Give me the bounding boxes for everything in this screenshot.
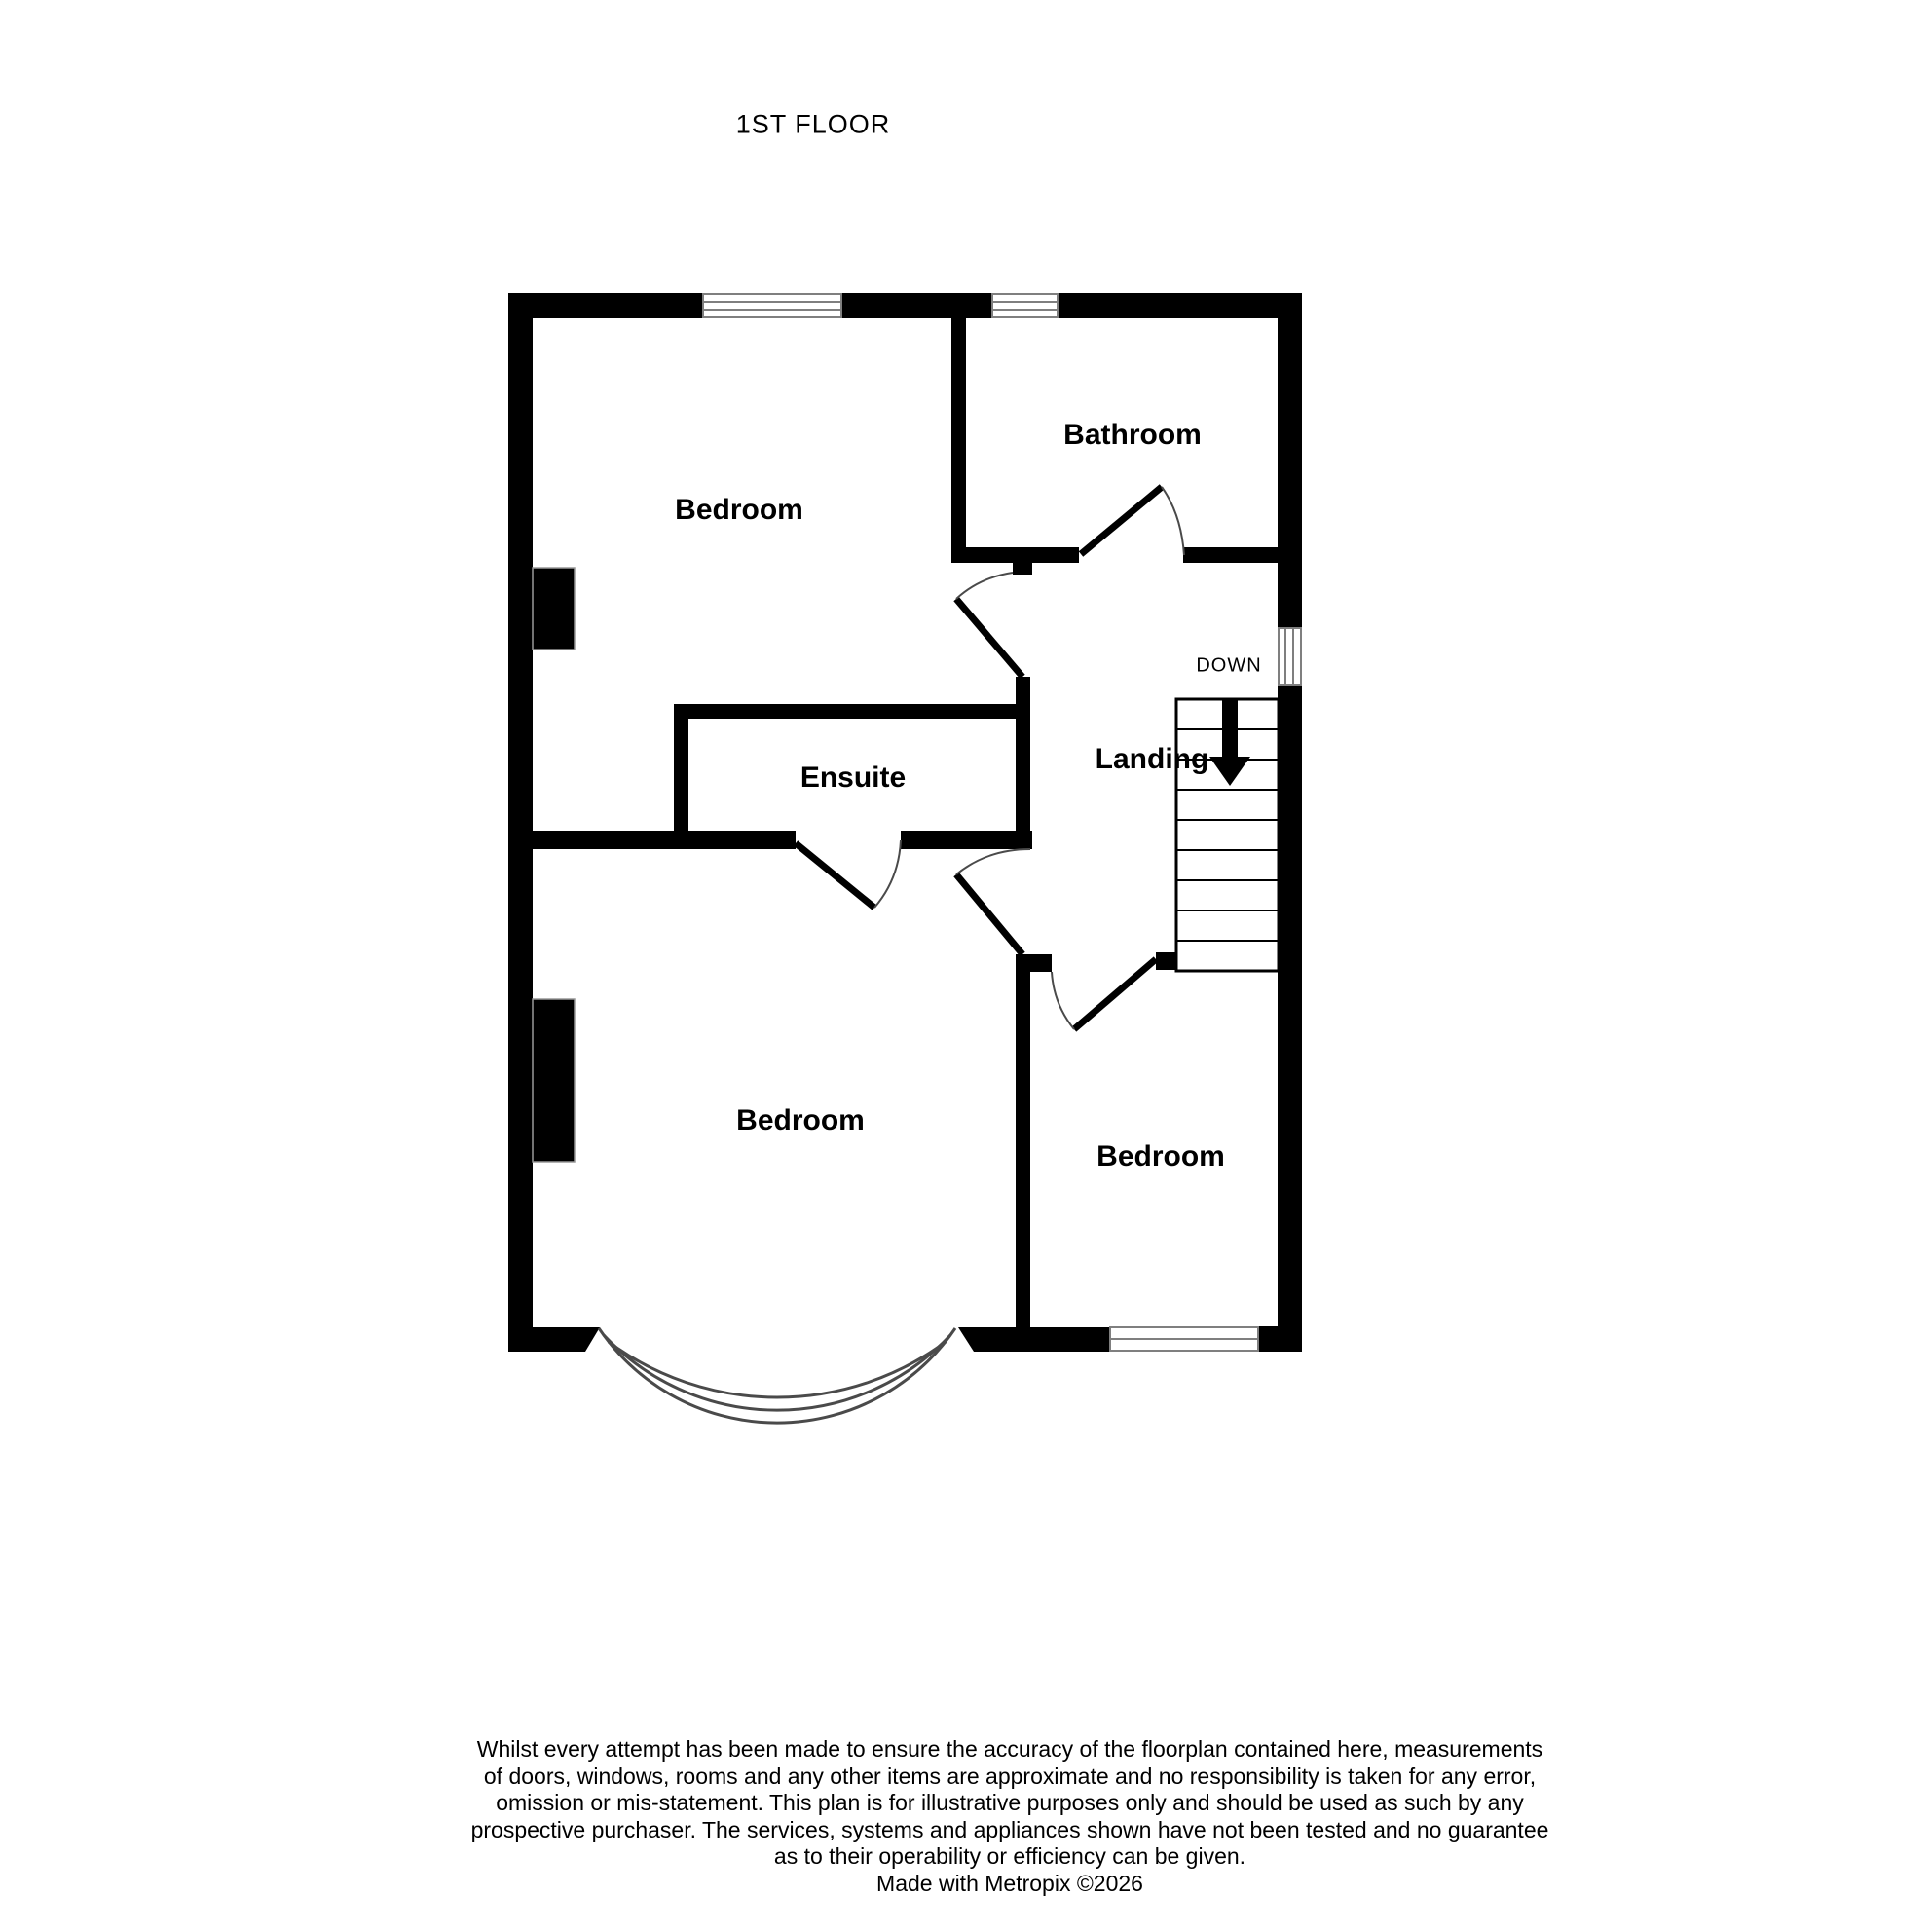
wall-bottom-right bbox=[1258, 1326, 1302, 1352]
stairs bbox=[1176, 699, 1279, 971]
disclaimer-line: Whilst every attempt has been made to en… bbox=[471, 1736, 1549, 1764]
credit-line: Made with Metropix ©2026 bbox=[471, 1871, 1549, 1898]
ensuite-door-arc bbox=[874, 840, 901, 908]
wall-bottom-mid bbox=[958, 1327, 1110, 1352]
wall-top-left bbox=[508, 293, 703, 318]
top-bedroom-door-arc bbox=[956, 573, 1013, 599]
wall-ensuite-west bbox=[674, 704, 688, 831]
room-label-bathroom: Bathroom bbox=[1063, 419, 1202, 452]
bottom-right-bedroom-door-arc bbox=[1052, 972, 1074, 1029]
wall-ensuite-north bbox=[674, 704, 1030, 719]
room-label-bedroom-bottom-right: Bedroom bbox=[1096, 1140, 1225, 1173]
wall-left bbox=[508, 293, 533, 1352]
chimney-breast-bottom bbox=[533, 999, 575, 1162]
window-top-2 bbox=[992, 294, 1058, 317]
floorplan-page: 1ST FLOOR Bedroom Bathroom Ensuite Landi… bbox=[0, 0, 1932, 1932]
disclaimer-line: as to their operability or efficiency ca… bbox=[471, 1843, 1549, 1871]
bottom-left-bedroom-door-arc bbox=[956, 849, 1030, 874]
wall-landing-south-stub-left bbox=[1016, 954, 1052, 972]
top-bedroom-door-leaf bbox=[956, 599, 1022, 677]
room-label-bedroom-bottom-left: Bedroom bbox=[736, 1104, 865, 1137]
wall-bathroom-west bbox=[951, 318, 966, 563]
wall-mid-divider bbox=[508, 831, 796, 849]
disclaimer-line: prospective purchaser. The services, sys… bbox=[471, 1817, 1549, 1844]
room-label-ensuite: Ensuite bbox=[800, 762, 906, 795]
wall-landing-south-stub-right bbox=[1156, 952, 1176, 970]
wall-bottom-left bbox=[508, 1327, 600, 1352]
bathroom-door-arc bbox=[1162, 487, 1184, 555]
disclaimer: Whilst every attempt has been made to en… bbox=[471, 1736, 1549, 1897]
wall-ensuite-east bbox=[1016, 677, 1030, 849]
window-bottom-right-bedroom bbox=[1110, 1327, 1258, 1351]
ensuite-door-leaf bbox=[796, 843, 874, 908]
wall-bathroom-south-left bbox=[951, 547, 1079, 563]
bay-window-arc-middle bbox=[604, 1335, 950, 1410]
disclaimer-line: of doors, windows, rooms and any other i… bbox=[471, 1764, 1549, 1791]
wall-bathroom-south-right bbox=[1183, 547, 1278, 563]
door-stub-top-bedroom bbox=[1013, 563, 1032, 575]
wall-bottom-bedrooms-divider bbox=[1016, 970, 1030, 1351]
bay-window bbox=[599, 1328, 955, 1423]
chimney-breast-top bbox=[533, 568, 575, 650]
window-right-side bbox=[1279, 628, 1301, 685]
wall-right-upper bbox=[1278, 293, 1302, 628]
wall-right-lower bbox=[1278, 685, 1302, 1351]
floorplan-drawing bbox=[0, 0, 1932, 1932]
window-top-1 bbox=[703, 294, 841, 317]
wall-ensuite-south-right bbox=[901, 831, 1032, 849]
room-label-bedroom-top: Bedroom bbox=[675, 494, 803, 527]
bottom-right-bedroom-door-leaf bbox=[1074, 959, 1156, 1029]
bottom-left-bedroom-door-leaf bbox=[956, 874, 1022, 954]
bathroom-door-leaf bbox=[1081, 487, 1162, 554]
wall-top-right bbox=[1058, 293, 1302, 318]
room-label-landing: Landing bbox=[1096, 743, 1209, 776]
stairs-direction-label: DOWN bbox=[1196, 655, 1261, 678]
wall-top-mid bbox=[841, 293, 992, 318]
page-title: 1ST FLOOR bbox=[736, 110, 891, 140]
disclaimer-line: omission or mis-statement. This plan is … bbox=[471, 1790, 1549, 1817]
